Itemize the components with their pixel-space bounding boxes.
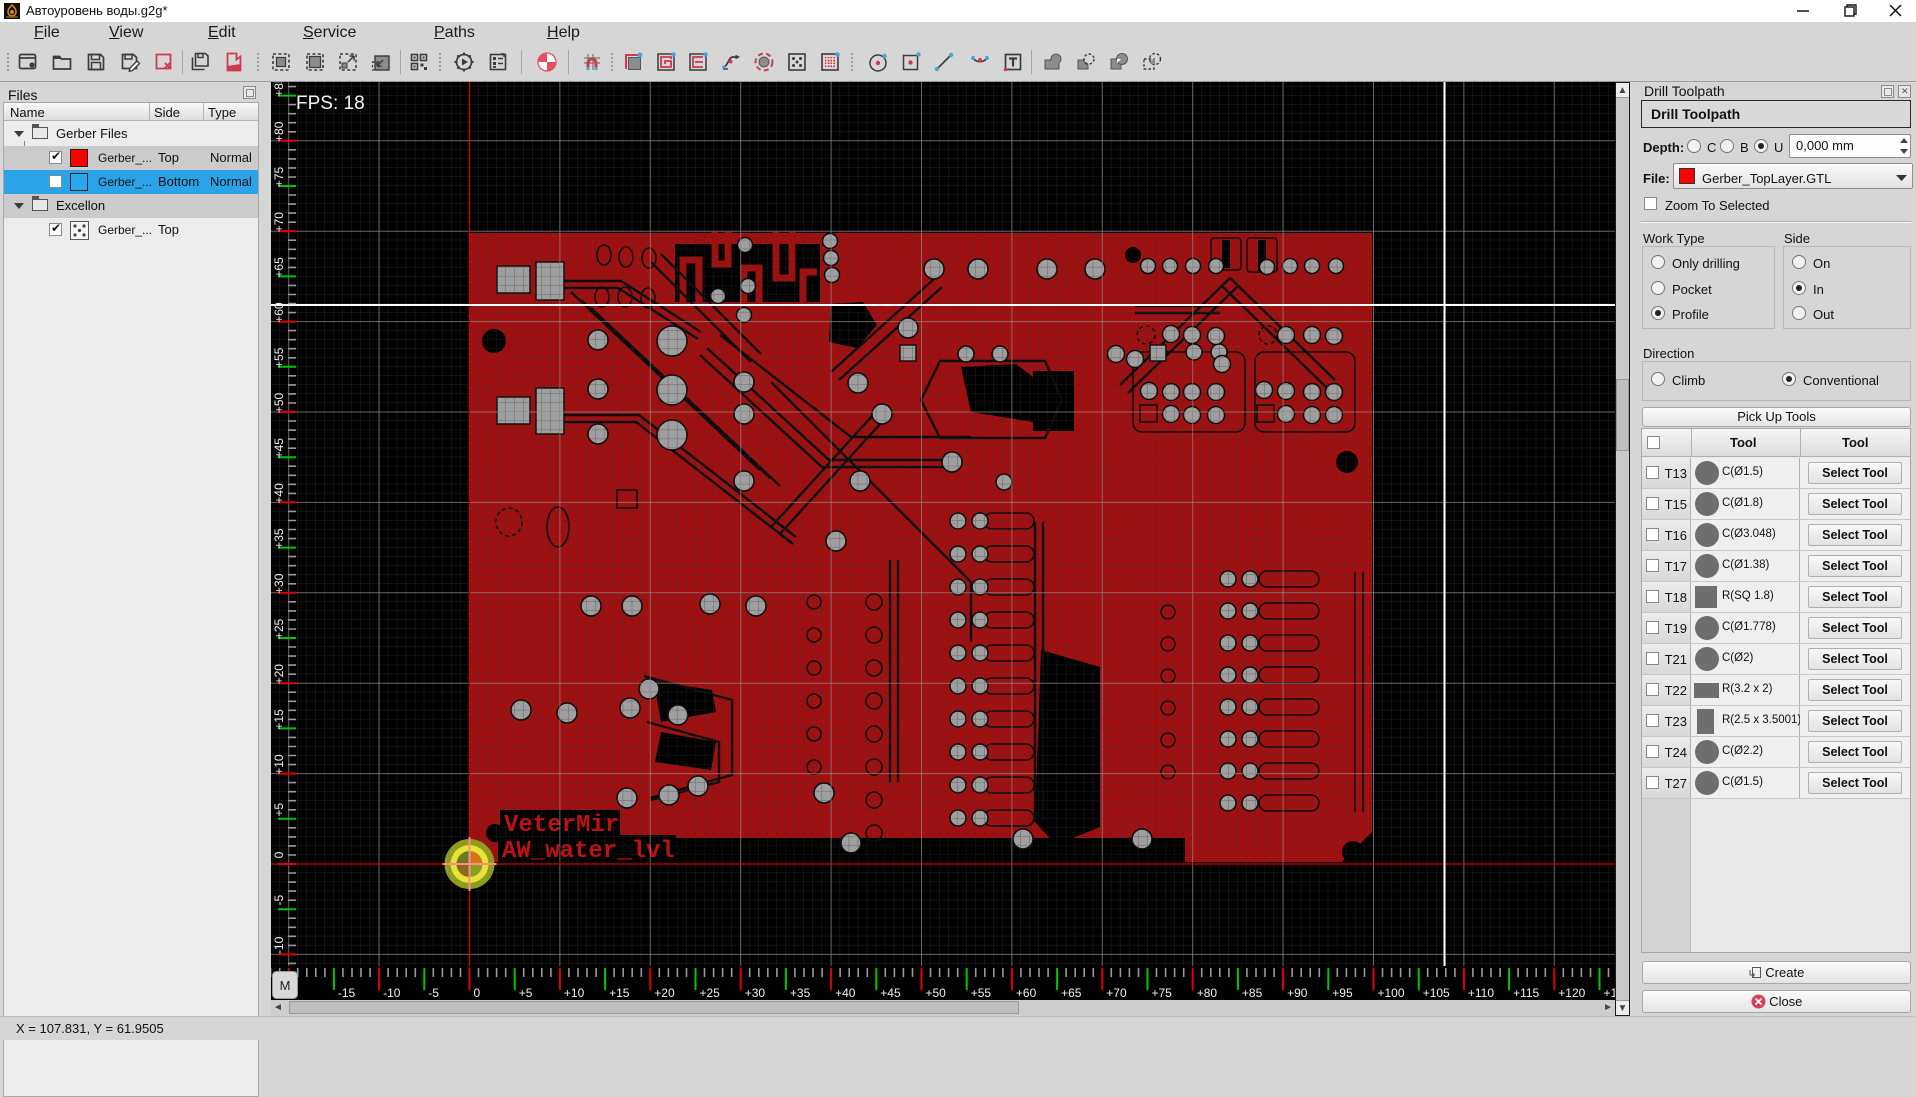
svg-text:+40: +40 xyxy=(272,483,286,504)
svg-text:+25: +25 xyxy=(272,618,286,639)
svg-text:+100: +100 xyxy=(1378,986,1405,1000)
svg-text:+15: +15 xyxy=(272,709,286,730)
svg-text:+55: +55 xyxy=(272,347,286,368)
svg-text:+110: +110 xyxy=(1468,986,1494,1000)
svg-text:+25: +25 xyxy=(700,986,721,1000)
svg-text:+5: +5 xyxy=(519,986,533,1000)
svg-text:+70: +70 xyxy=(1106,986,1127,1000)
svg-text:-5: -5 xyxy=(428,986,439,1000)
svg-text:-10: -10 xyxy=(272,936,286,954)
svg-text:+120: +120 xyxy=(1558,986,1585,1000)
svg-text:-5: -5 xyxy=(272,895,286,906)
svg-text:+5: +5 xyxy=(272,803,286,817)
svg-text:+65: +65 xyxy=(272,257,286,278)
svg-text:+15: +15 xyxy=(609,986,630,1000)
svg-text:FPS: 18: FPS: 18 xyxy=(296,93,365,114)
svg-text:+85: +85 xyxy=(1242,986,1263,1000)
svg-text:0: 0 xyxy=(474,986,481,1000)
svg-text:+35: +35 xyxy=(790,986,811,1000)
svg-text:+75: +75 xyxy=(1152,986,1173,1000)
svg-text:-10: -10 xyxy=(383,986,401,1000)
svg-text:0: 0 xyxy=(272,851,286,858)
svg-text:+115: +115 xyxy=(1513,986,1539,1000)
svg-text:+10: +10 xyxy=(564,986,585,1000)
svg-text:+30: +30 xyxy=(272,573,286,594)
svg-text:+75: +75 xyxy=(272,166,286,187)
svg-text:+125: +125 xyxy=(1604,986,1616,1000)
svg-text:M: M xyxy=(280,978,291,993)
svg-text:+55: +55 xyxy=(971,986,992,1000)
svg-text:+80: +80 xyxy=(272,121,286,142)
svg-text:+30: +30 xyxy=(745,986,766,1000)
svg-text:+70: +70 xyxy=(272,212,286,233)
svg-text:+65: +65 xyxy=(1061,986,1082,1000)
svg-text:+60: +60 xyxy=(1016,986,1037,1000)
svg-text:+60: +60 xyxy=(272,302,286,323)
svg-text:-15: -15 xyxy=(338,986,356,1000)
svg-text:+20: +20 xyxy=(654,986,675,1000)
svg-text:+50: +50 xyxy=(926,986,947,1000)
svg-text:+95: +95 xyxy=(1332,986,1353,1000)
svg-text:+35: +35 xyxy=(272,528,286,549)
svg-text:+85: +85 xyxy=(272,82,286,97)
svg-text:+40: +40 xyxy=(835,986,856,1000)
svg-text:+80: +80 xyxy=(1197,986,1218,1000)
svg-text:+50: +50 xyxy=(272,392,286,413)
svg-text:+10: +10 xyxy=(272,754,286,775)
svg-text:+20: +20 xyxy=(272,664,286,685)
svg-text:+105: +105 xyxy=(1423,986,1450,1000)
svg-text:+45: +45 xyxy=(880,986,901,1000)
svg-text:+45: +45 xyxy=(272,438,286,459)
svg-text:+90: +90 xyxy=(1287,986,1308,1000)
